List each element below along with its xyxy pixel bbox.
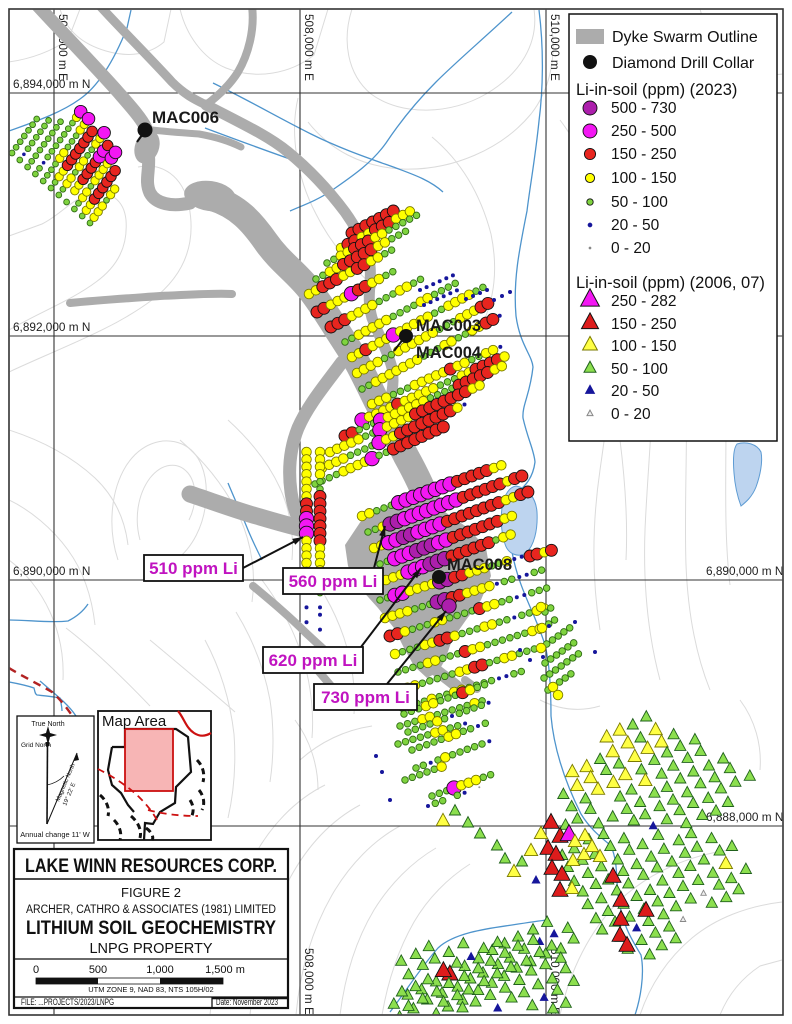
svg-text:MAC006: MAC006 xyxy=(152,108,219,127)
svg-text:1,500 m: 1,500 m xyxy=(205,964,245,976)
svg-text:250 - 282: 250 - 282 xyxy=(611,293,677,310)
svg-text:508,000 m E: 508,000 m E xyxy=(302,14,316,81)
svg-text:Li-in-soil (ppm) (2023): Li-in-soil (ppm) (2023) xyxy=(576,81,737,99)
svg-text:MAC004: MAC004 xyxy=(416,344,482,362)
svg-text:510,000 m E: 510,000 m E xyxy=(548,14,562,81)
svg-text:Date: November 2023: Date: November 2023 xyxy=(216,997,278,1007)
svg-text:LNPG PROPERTY: LNPG PROPERTY xyxy=(89,941,212,957)
svg-text:510 ppm Li: 510 ppm Li xyxy=(149,559,238,578)
svg-text:500 - 730: 500 - 730 xyxy=(611,100,677,117)
svg-text:MAC003: MAC003 xyxy=(416,317,481,335)
svg-text:0 - 20: 0 - 20 xyxy=(611,406,651,423)
svg-text:250 - 500: 250 - 500 xyxy=(611,123,677,140)
svg-text:0 - 20: 0 - 20 xyxy=(611,240,651,257)
svg-text:Dyke Swarm Outline: Dyke Swarm Outline xyxy=(612,29,758,46)
svg-text:508,000 m E: 508,000 m E xyxy=(302,948,316,1015)
svg-text:UTM ZONE 9, NAD 83, NTS 105H/0: UTM ZONE 9, NAD 83, NTS 105H/02 xyxy=(88,985,213,994)
svg-text:FIGURE 2: FIGURE 2 xyxy=(121,885,181,900)
svg-text:560 ppm Li: 560 ppm Li xyxy=(289,572,378,591)
svg-text:50 - 100: 50 - 100 xyxy=(611,361,668,378)
svg-text:500: 500 xyxy=(89,964,107,976)
svg-text:LAKE WINN RESOURCES CORP.: LAKE WINN RESOURCES CORP. xyxy=(25,856,277,877)
svg-text:20 - 50: 20 - 50 xyxy=(611,383,660,400)
svg-text:6,890,000 m N: 6,890,000 m N xyxy=(13,564,90,578)
svg-text:Map Area: Map Area xyxy=(102,713,167,730)
svg-text:150 - 250: 150 - 250 xyxy=(611,316,677,333)
svg-text:6,892,000 m N: 6,892,000 m N xyxy=(13,320,90,334)
svg-text:0: 0 xyxy=(33,964,39,976)
svg-text:620 ppm Li: 620 ppm Li xyxy=(269,651,358,670)
svg-text:ARCHER, CATHRO & ASSOCIATES (1: ARCHER, CATHRO & ASSOCIATES (1981) LIMIT… xyxy=(26,902,276,916)
svg-text:100 - 150: 100 - 150 xyxy=(611,170,677,187)
svg-text:6,894,000 m N: 6,894,000 m N xyxy=(13,77,90,91)
svg-text:1,000: 1,000 xyxy=(146,964,174,976)
svg-text:20 - 50: 20 - 50 xyxy=(611,217,660,234)
svg-text:MAC008: MAC008 xyxy=(447,556,512,574)
svg-text:150 - 250: 150 - 250 xyxy=(611,146,677,163)
svg-text:730 ppm Li: 730 ppm Li xyxy=(321,688,410,707)
svg-text:Li-in-soil (ppm) (2006, 07): Li-in-soil (ppm) (2006, 07) xyxy=(576,274,765,292)
svg-text:FILE: ...PROJECTS/2023/LNPG: FILE: ...PROJECTS/2023/LNPG xyxy=(21,997,114,1007)
svg-text:Annual change 11' W: Annual change 11' W xyxy=(20,830,90,839)
svg-text:50 - 100: 50 - 100 xyxy=(611,194,668,211)
svg-text:LITHIUM SOIL GEOCHEMISTRY: LITHIUM SOIL GEOCHEMISTRY xyxy=(26,918,276,939)
svg-text:100 - 150: 100 - 150 xyxy=(611,338,677,355)
svg-text:Diamond Drill Collar: Diamond Drill Collar xyxy=(612,55,755,72)
svg-text:6,890,000 m N: 6,890,000 m N xyxy=(706,564,783,578)
